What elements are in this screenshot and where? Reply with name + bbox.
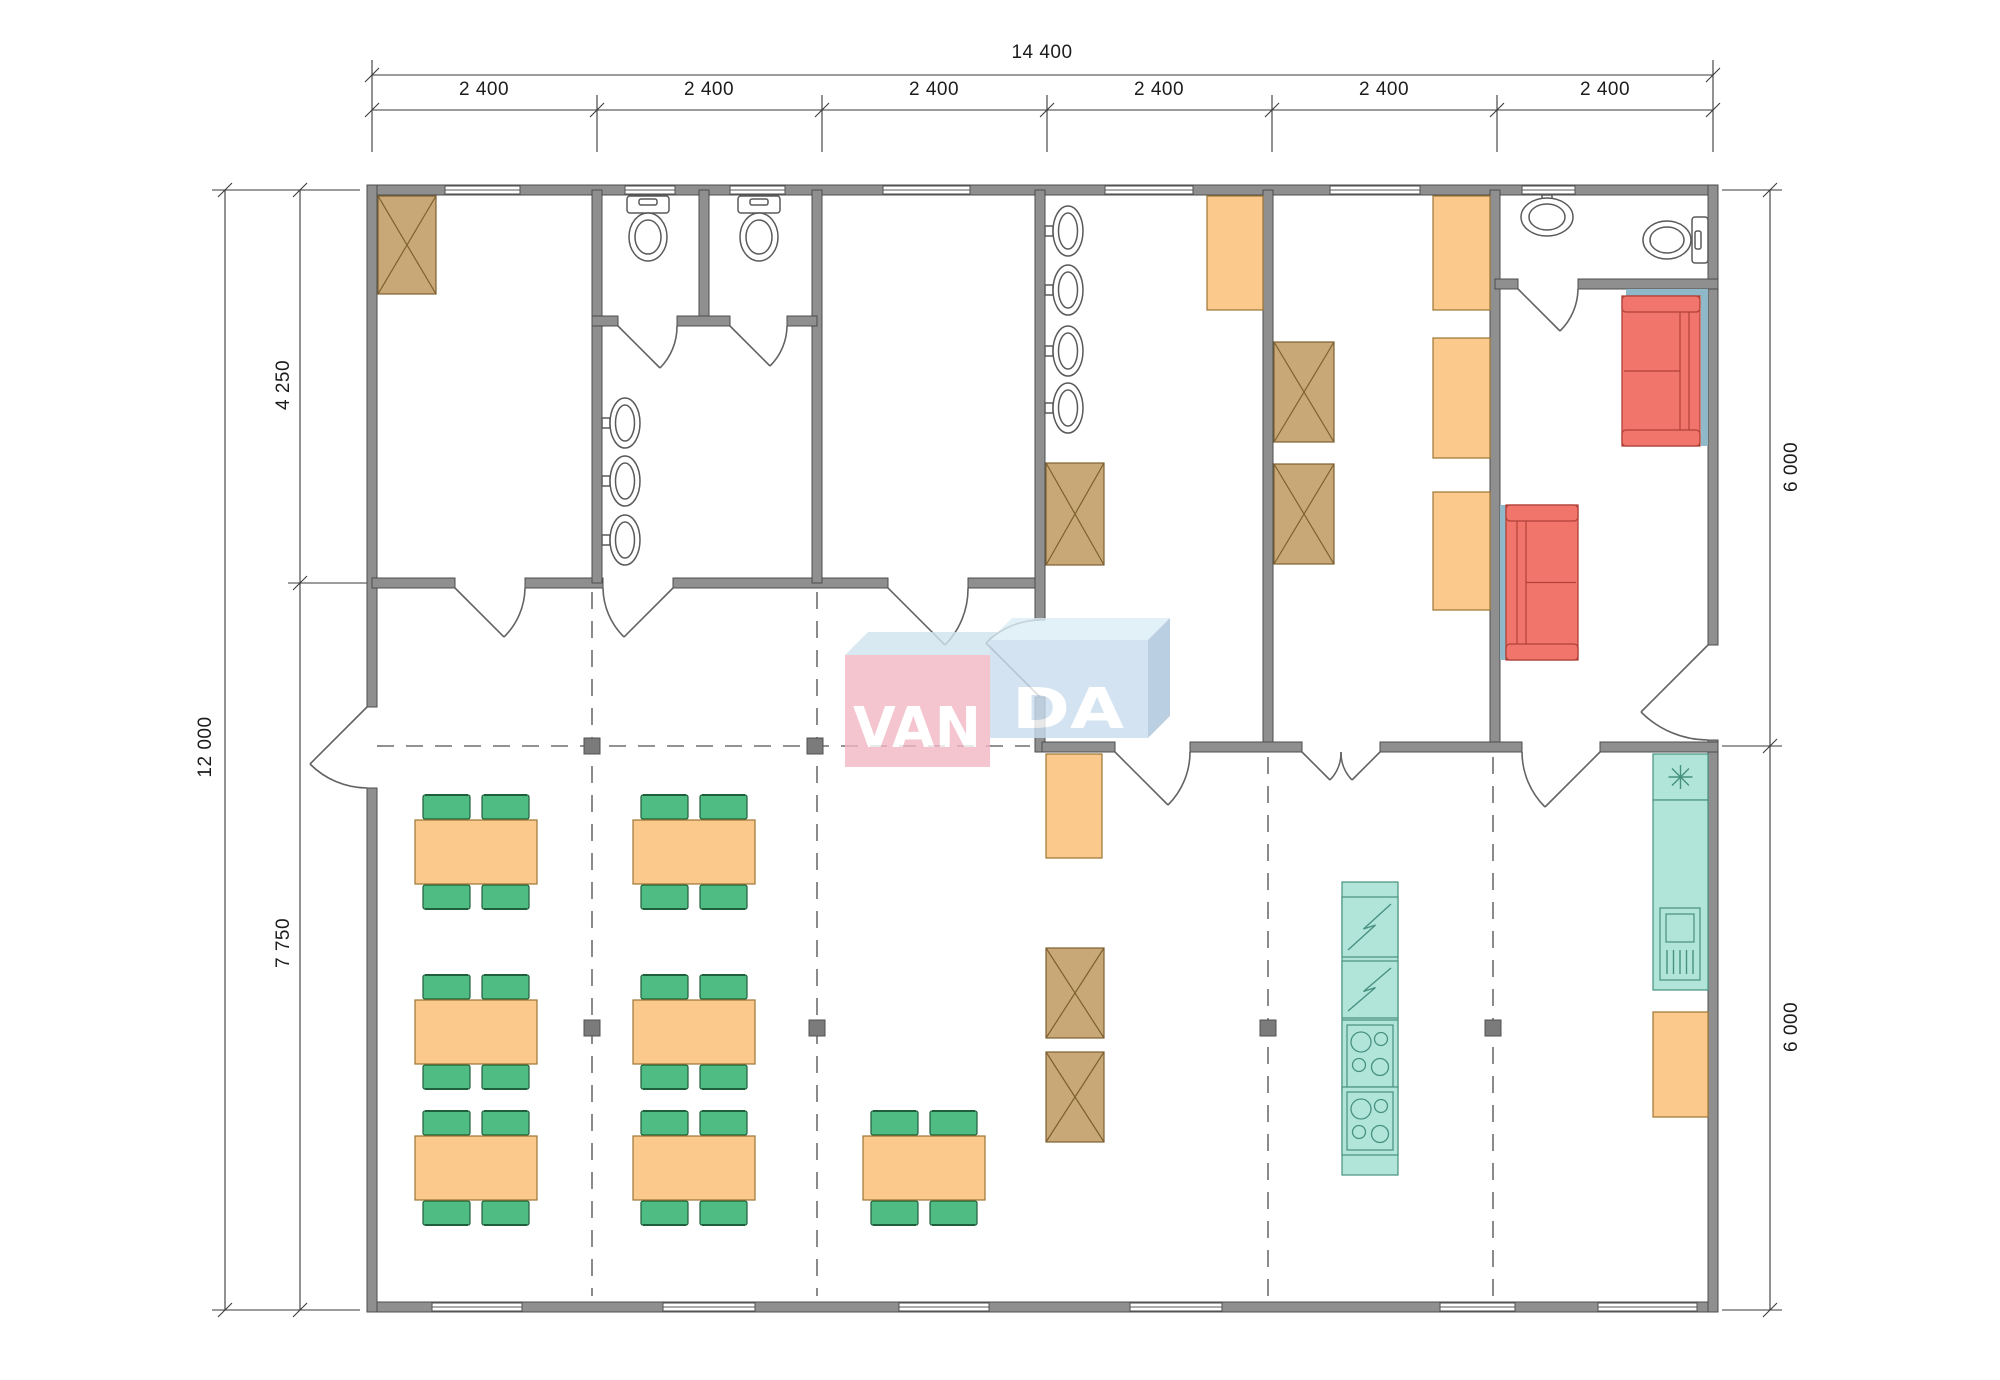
logo-pink-top-face [845,632,1013,655]
logo-text-da: DA [1012,677,1125,742]
floor-plan-page: { "dimensions": { "top_total": "14 400",… [0,0,2000,1380]
logo-text-van: VAN [853,696,981,761]
logo-blue-top-face [990,618,1170,640]
